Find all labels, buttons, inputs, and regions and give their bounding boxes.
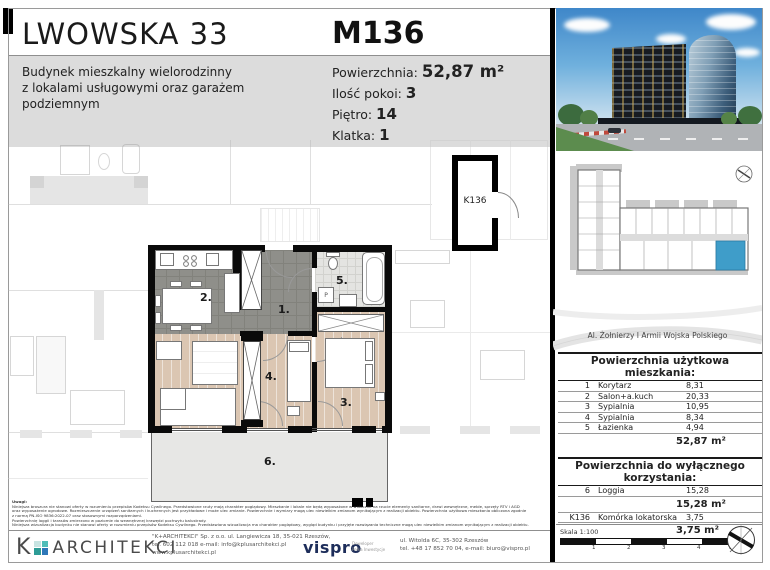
architect-logo-k: K [16,535,30,560]
legal-notes: Uwagi: Niniejsza broszura nie stanowi of… [12,500,548,528]
shaft-stub-bottom [241,420,263,427]
table-row: K136Komórka lokatorska3,75 [558,513,762,524]
wall-bath-left-a [312,250,317,268]
notes-line: Niniejsza wizualizacja budynku nie stano… [12,523,548,528]
map-road-curves [553,288,762,358]
street-label: Al. Żołnierzy I Armii Wojska Polskiego [553,331,762,340]
pier [382,426,392,433]
usable-area-total: 52,87 m² [558,434,762,449]
usable-area-table: Powierzchnia użytkowa mieszkania: 1Koryt… [558,352,762,449]
room-label-loggia: 6. [264,455,276,468]
living-cabinet [192,341,238,385]
pillow [365,341,373,361]
highlighted-unit [716,241,745,270]
table-row: 3Sypialnia10,95 [558,402,762,413]
wall-right [385,245,392,432]
building-photo [556,8,762,151]
nightstand [375,392,385,401]
pier [148,426,172,433]
architect-logo-squares [34,541,48,555]
shaft-upper [241,250,262,310]
shaft-lower [243,341,261,420]
photo-tower-dark [612,44,686,124]
chair [190,325,202,331]
wall-corridor-b [288,331,315,336]
wardrobe [318,314,384,332]
chair [170,281,182,287]
pier [288,426,312,433]
kitchen-stove [182,253,198,267]
scale-tick: 2 [627,545,631,551]
scale-bar [560,538,738,545]
wall-rooms-b [312,362,317,432]
scale-tick: 1 [592,545,596,551]
table-row: 6Loggia15,28 [558,486,762,497]
storage-label: K136 [452,196,498,208]
scale-tick: 3 [662,545,666,551]
loggia-subtotal: 15,28 m² [558,497,762,513]
window [247,428,288,431]
room-label-bathroom: 5. [336,274,348,287]
table-row: 4Sypialnia8,34 [558,413,762,424]
site-key-plan [556,158,762,298]
scale-label: Skala 1:100 [560,528,598,536]
scale-tick: 4 [697,545,701,551]
armchair [156,341,182,360]
shaft-stub-top [241,334,263,341]
usable-area-title: Powierzchnia użytkowa mieszkania: [558,352,762,381]
sofa-chaise [160,388,186,410]
room-label-bedroom3: 3. [340,396,352,409]
chair [170,325,182,331]
window [312,428,352,431]
kitchen-oven [206,253,219,266]
pier [222,426,247,433]
developer-phone-email: tel. +48 17 852 70 04, e-mail: biuro@vis… [400,545,530,553]
developer-address: ul. Witolda 6C, 35-302 Rzeszów [400,537,530,545]
vertical-divider [550,8,555,562]
exclusive-area-title: Powierzchnia do wyłącznego korzystania: [558,457,762,486]
room-label-bedroom4: 4. [265,370,277,383]
developer-tag-line: Pełka Inwestycje [352,547,385,553]
chair [155,295,161,307]
wall-left [148,245,155,432]
table-row: 5Łazienka4,94 [558,423,762,434]
footer-divider [9,530,550,531]
developer-contact: ul. Witolda 6C, 35-302 Rzeszów tel. +48 … [400,537,530,553]
room-label-salon: 2. [200,291,212,304]
north-compass-icon [725,524,757,556]
siteplan-north-icon [736,166,752,182]
table-row: 2Salon+a.kuch20,33 [558,392,762,403]
pillow [365,364,373,384]
table-row: 1Korytarz8,31 [558,381,762,392]
chair [155,312,161,324]
cloud [734,48,760,57]
pillow [289,342,309,352]
window [172,428,222,431]
car [608,128,621,133]
cloud [564,18,610,32]
nightstand [287,406,300,416]
bathroom-sink [339,294,357,307]
kitchen-sink [160,253,174,266]
cloud [706,14,756,30]
kitchen-cabinet [224,273,240,313]
brochure-sheet: LWOWSKA 33 M136 Budynek mieszkalny wielo… [0,0,770,570]
tree [738,106,762,126]
cloud [656,34,686,44]
room-label-corridor: 1. [278,303,290,316]
bathtub-inner [366,257,383,302]
washing-machine: P [318,287,334,303]
pier [352,426,376,433]
toilet [328,257,338,270]
window [376,428,382,431]
wall-bath-bottom [315,307,386,312]
wall-top-right [293,245,392,252]
developer-tagline: Deweloper Pełka Inwestycje [352,541,385,552]
wall-rooms-a [312,312,317,337]
chair [190,281,202,287]
